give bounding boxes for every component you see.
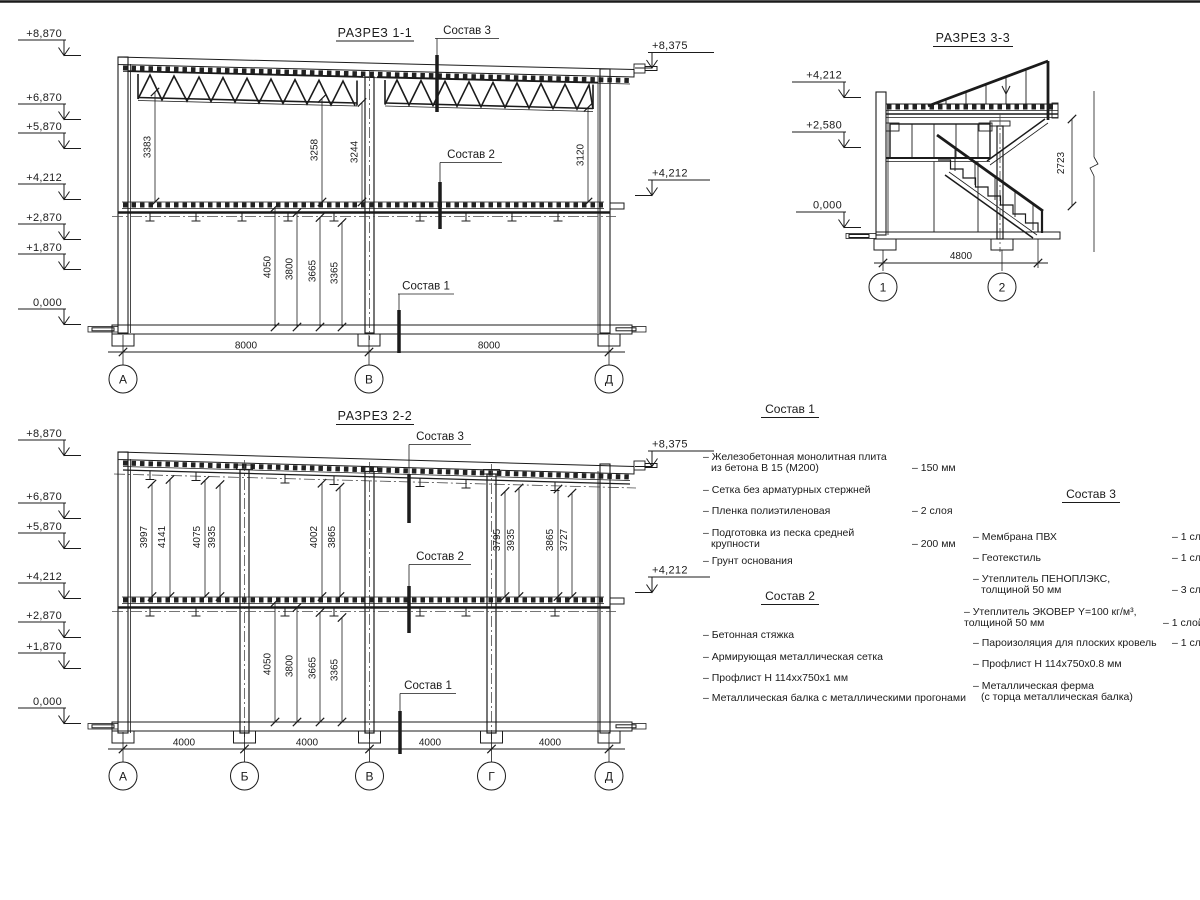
svg-text:0,000: 0,000 (33, 297, 62, 309)
svg-text:+1,870: +1,870 (26, 242, 62, 254)
dimension-label: 3383 (143, 135, 154, 158)
section-2-2-drawing: РАЗРЕЗ 2-2 (18, 409, 714, 790)
stair-flights (938, 119, 1048, 238)
section-title: РАЗРЕЗ 1-1 (338, 26, 413, 40)
dimension-label: 4000 (173, 738, 196, 749)
spec-row: – Железобетонная монолитная плита из бет… (703, 452, 887, 474)
dimension-label: 3365 (330, 261, 341, 284)
callout-sostav-3: Состав 3 (409, 431, 471, 523)
roof-truss-right (377, 77, 598, 112)
spec-row: – Геотекстиль – 1 слой (973, 553, 1041, 564)
dimension-label: 3727 (559, 528, 570, 551)
bottom-dimension-chain: 4000 4000 4000 4000 (108, 732, 625, 762)
spec-row: – Металлическая балка с металлическими п… (703, 693, 966, 704)
spec-title: Состав 1 (720, 404, 860, 415)
elevation-marks-left: +8,870 +6,870 +5,870 +4,212 +2,870 +1,87… (18, 28, 81, 325)
svg-text:+8,870: +8,870 (26, 28, 62, 40)
floor-slab (112, 202, 624, 221)
axis-bubbles: А Б В Г Д (109, 762, 623, 790)
vertical-dimension: 2723 (1056, 91, 1098, 252)
spec-row: – Мембрана ПВХ – 1 слой (973, 532, 1057, 543)
spec-row: – Пленка полиэтиленовая – 2 слоя (703, 506, 830, 517)
elevation-mark: +4,212 (635, 168, 710, 196)
elevation-mark: +8,870 (18, 428, 81, 456)
dimension-label: 4141 (157, 525, 168, 548)
svg-text:+2,580: +2,580 (806, 120, 842, 132)
dimension-label: 3258 (310, 138, 321, 161)
section-3-3-drawing: РАЗРЕЗ 3-3 (792, 31, 1098, 301)
dimension-label: 3120 (576, 143, 587, 166)
dimension-label: 8000 (235, 341, 258, 352)
elevation-mark: +1,870 (18, 242, 81, 270)
lower-dimensions: 4050 3800 3665 3365 (263, 598, 347, 726)
lower-dimensions: 4050 3800 3665 3365 (263, 203, 347, 331)
axis-label: В (365, 373, 373, 387)
svg-text:+2,870: +2,870 (26, 610, 62, 622)
wall-axis-a (118, 57, 131, 333)
dimension-label: 4800 (950, 251, 973, 262)
wall-axis-a (118, 452, 131, 733)
svg-text:+8,870: +8,870 (26, 428, 62, 440)
dimension-label: 2723 (1056, 151, 1067, 174)
elevation-mark: +4,212 (792, 70, 861, 98)
upper-dimensions: 3997 4141 4075 3935 4002 3865 3795 3935 … (139, 475, 576, 600)
elevation-mark: 0,000 (796, 200, 861, 228)
spec-title: Состав 3 (1021, 489, 1161, 500)
spec-row: – Утеплитель ЭКОВЕР Y=100 кг/м³, толщино… (964, 607, 1137, 629)
roof-structure (118, 57, 657, 84)
svg-text:+5,870: +5,870 (26, 521, 62, 533)
dimension-label: 4002 (309, 525, 320, 548)
ground-slab (88, 325, 646, 346)
elevation-mark: +1,870 (18, 641, 81, 669)
section-1-1-drawing: РАЗРЕЗ 1-1 (18, 25, 714, 393)
axis-bubbles: 1 2 (869, 273, 1016, 301)
axis-label: Б (241, 770, 249, 784)
svg-text:+4,212: +4,212 (26, 172, 62, 184)
dimension-label: 3997 (139, 525, 150, 548)
axis-label: 1 (880, 281, 887, 295)
spec-block-sostav-2: Состав 2 – Бетонная стяжка – Армирующая … (695, 591, 975, 716)
svg-text:+2,870: +2,870 (26, 212, 62, 224)
svg-text:+4,212: +4,212 (806, 70, 842, 82)
dimension-label: 3935 (506, 528, 517, 551)
elevation-mark: +4,212 (18, 172, 81, 200)
dimension-label: 4050 (263, 255, 274, 278)
bottom-dimension-chain: 4800 (874, 239, 1048, 271)
callout-label: Состав 1 (404, 680, 452, 692)
dimension-label: 3365 (330, 658, 341, 681)
elevation-mark: 0,000 (18, 297, 81, 325)
dimension-label: 3865 (327, 525, 338, 548)
bottom-dimension-chain: 8000 8000 (108, 335, 625, 365)
svg-text:+8,375: +8,375 (652, 40, 688, 52)
spec-block-sostav-1: Состав 1 – Железобетонная монолитная пли… (695, 404, 967, 584)
svg-text:+5,870: +5,870 (26, 121, 62, 133)
wall-axis-d (598, 69, 610, 333)
axis-bubbles: А В Д (109, 365, 623, 393)
spec-row: – Сетка без арматурных стержней (703, 485, 871, 496)
svg-text:+4,212: +4,212 (652, 565, 688, 577)
spec-block-sostav-3: Состав 3 – Мембрана ПВХ – 1 слой – Геоте… (961, 489, 1200, 714)
elevation-mark: +8,375 (635, 40, 714, 68)
spec-title: Состав 2 (720, 591, 860, 602)
dimension-label: 4050 (263, 652, 274, 675)
callout-label: Состав 2 (416, 551, 464, 563)
spec-row: – Бетонная стяжка (703, 630, 794, 641)
elevation-mark: +4,212 (18, 571, 81, 599)
dimension-label: 4000 (539, 738, 562, 749)
axis-label: В (365, 770, 373, 784)
elevation-marks-right: +8,375 +4,212 (635, 40, 714, 196)
dimension-label: 4075 (192, 525, 203, 548)
svg-text:+6,870: +6,870 (26, 491, 62, 503)
spec-row: – Металлическая ферма (с торца металличе… (973, 681, 1133, 703)
spec-row: – Армирующая металлическая сетка (703, 652, 883, 663)
elevation-mark: +6,870 (18, 491, 81, 519)
dimension-label: 3244 (350, 140, 361, 163)
dimension-label: 4000 (296, 738, 319, 749)
dimension-label: 3800 (285, 654, 296, 677)
spec-row: – Профлист Н 114х750х0.8 мм (973, 659, 1122, 670)
elevation-mark: +2,870 (18, 610, 81, 638)
elevation-mark: +5,870 (18, 521, 81, 549)
upper-dimensions: 3383 3258 3244 3120 (143, 88, 593, 206)
landing-balustrade (886, 123, 992, 158)
stair-railing (928, 61, 1048, 233)
dimension-label: 8000 (478, 341, 501, 352)
callout-sostav-2: Состав 2 (409, 551, 471, 633)
axis-label: А (119, 373, 127, 387)
callout-sostav-2: Состав 2 (440, 149, 502, 229)
callout-sostav-1: Состав 1 (398, 281, 454, 354)
landing-floor (886, 158, 990, 232)
upper-floor-deck (886, 103, 1058, 118)
svg-text:+1,870: +1,870 (26, 641, 62, 653)
svg-text:+4,212: +4,212 (26, 571, 62, 583)
callout-label: Состав 1 (402, 281, 450, 293)
callout-sostav-3: Состав 3 (435, 25, 499, 112)
dimension-label: 3795 (492, 528, 503, 551)
svg-text:+6,870: +6,870 (26, 92, 62, 104)
spec-row: – Подготовка из песка средней крупности … (703, 528, 854, 550)
elevation-marks-left: +8,870 +6,870 +5,870 +4,212 +2,870 +1,87… (18, 428, 81, 724)
spec-row: – Пароизоляция для плоских кровель – 1 с… (973, 638, 1157, 649)
elevation-mark: 0,000 (18, 696, 81, 724)
svg-text:+8,375: +8,375 (652, 439, 688, 451)
dimension-label: 3935 (207, 525, 218, 548)
axis-label: 2 (999, 281, 1006, 295)
spec-row: – Профлист Н 114хх750х1 мм (703, 673, 848, 684)
dimension-label: 3865 (545, 528, 556, 551)
elevation-mark: +2,580 (792, 120, 861, 148)
dimension-label: 3800 (285, 257, 296, 280)
elevation-mark: +5,870 (18, 121, 81, 149)
axis-label: Г (488, 770, 495, 784)
elevation-mark: +6,870 (18, 92, 81, 120)
dimension-label: 3665 (308, 656, 319, 679)
dimension-label: 4000 (419, 738, 442, 749)
spec-row: – Утеплитель ПЕНОПЛЭКС, толщиной 50 мм –… (973, 574, 1110, 596)
svg-text:0,000: 0,000 (813, 200, 842, 212)
dimension-label: 3665 (308, 259, 319, 282)
elevation-mark: +2,870 (18, 212, 81, 240)
callout-label: Состав 2 (447, 149, 495, 161)
svg-text:0,000: 0,000 (33, 696, 62, 708)
axis-label: Д (605, 770, 613, 784)
drawing-canvas: РАЗРЕЗ 1-1 (0, 0, 1200, 900)
stair-column (990, 114, 1010, 252)
section-title: РАЗРЕЗ 3-3 (936, 31, 1011, 45)
svg-text:+4,212: +4,212 (652, 168, 688, 180)
drawing-sheet: РАЗРЕЗ 1-1 (0, 0, 1200, 900)
section-title: РАЗРЕЗ 2-2 (338, 409, 413, 423)
axis-label: А (119, 770, 127, 784)
callout-label: Состав 3 (443, 25, 491, 37)
roof-truss-left (128, 71, 363, 106)
spec-row: – Грунт основания (703, 556, 793, 567)
roof-structure (114, 452, 657, 491)
callout-label: Состав 3 (416, 431, 464, 443)
axis-label: Д (605, 373, 613, 387)
elevation-mark: +8,870 (18, 28, 81, 56)
elevation-marks-left: +4,212 +2,580 0,000 (792, 70, 861, 228)
floor-slab (112, 597, 624, 616)
interior-columns (237, 460, 500, 740)
